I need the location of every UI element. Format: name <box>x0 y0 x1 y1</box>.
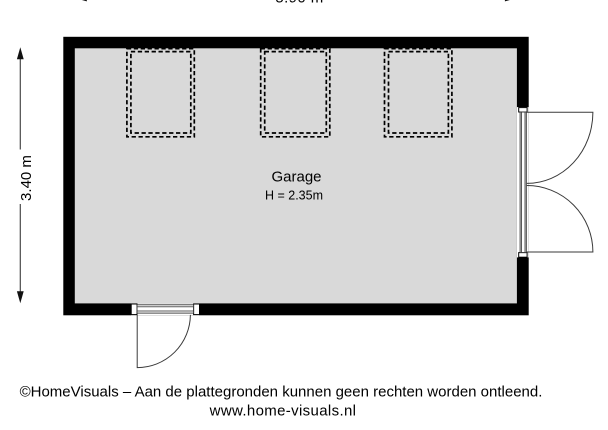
svg-text:Garage: Garage <box>271 168 321 185</box>
svg-text:©HomeVisuals – Aan de plattegr: ©HomeVisuals – Aan de plattegronden kunn… <box>20 384 543 401</box>
svg-text:5.90 m: 5.90 m <box>275 0 323 7</box>
svg-text:www.home-visuals.nl: www.home-visuals.nl <box>209 403 357 420</box>
svg-text:H = 2.35m: H = 2.35m <box>265 189 323 203</box>
svg-text:3.40 m: 3.40 m <box>18 155 35 201</box>
